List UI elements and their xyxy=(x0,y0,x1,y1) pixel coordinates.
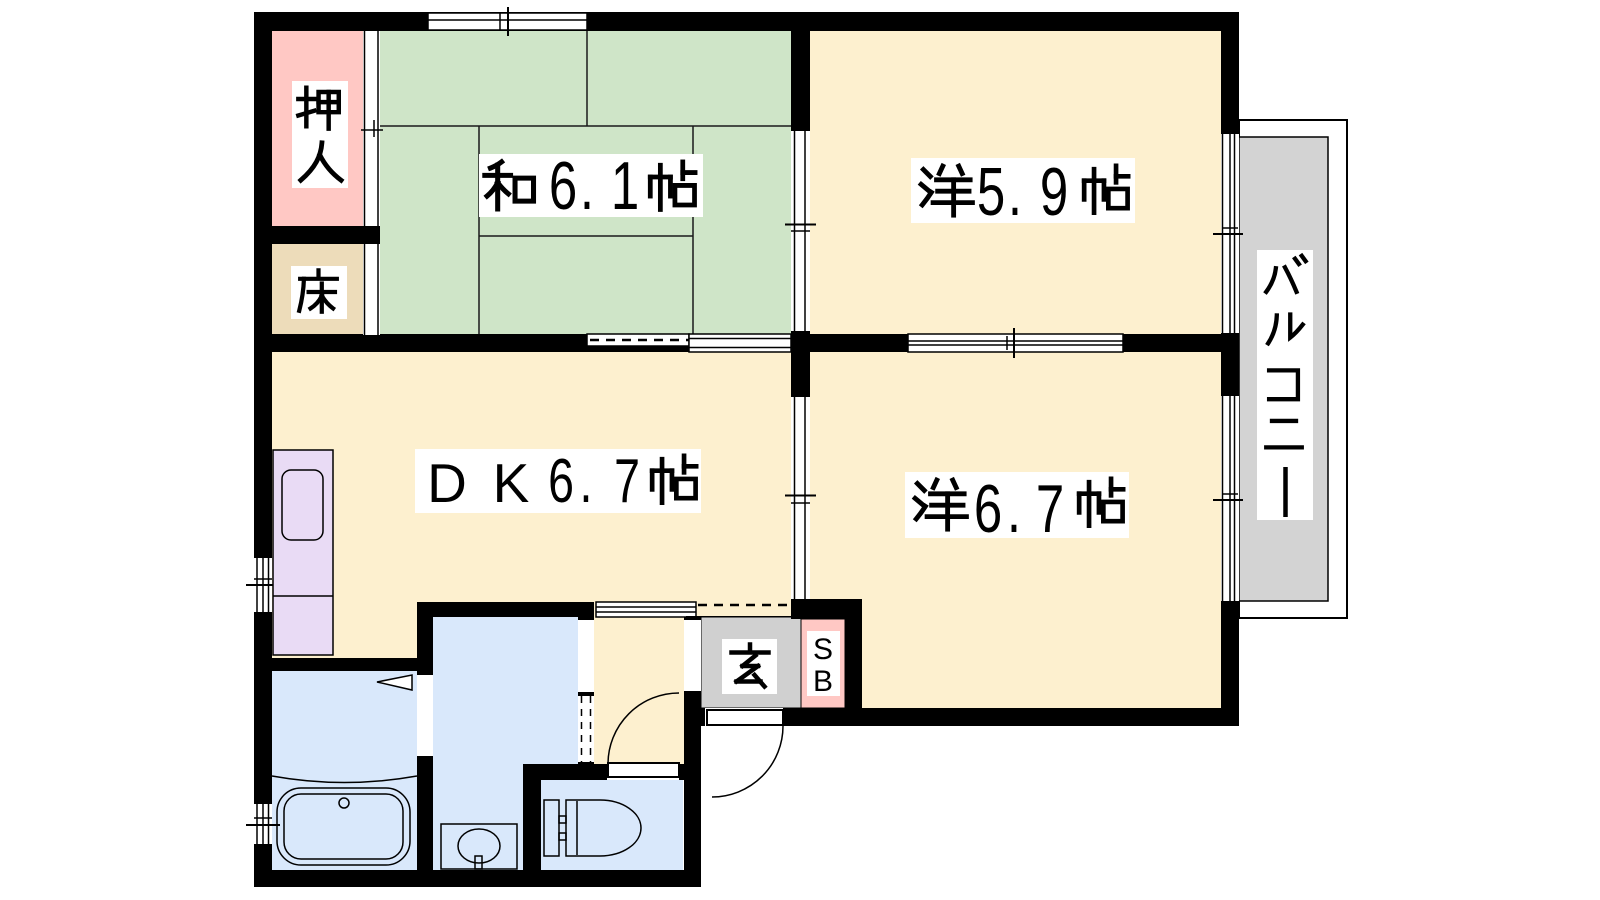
svg-text:.: . xyxy=(1008,154,1022,230)
svg-text:6: 6 xyxy=(974,471,1002,547)
svg-text:.: . xyxy=(580,148,594,224)
svg-text:.: . xyxy=(580,445,593,515)
svg-text:9: 9 xyxy=(1040,154,1068,230)
svg-text:K: K xyxy=(493,452,530,514)
svg-text:.: . xyxy=(1007,471,1021,547)
svg-text:5: 5 xyxy=(977,154,1005,230)
svg-text:6: 6 xyxy=(549,148,577,224)
svg-text:S: S xyxy=(813,633,833,666)
svg-text:7: 7 xyxy=(1036,471,1064,547)
svg-text:6: 6 xyxy=(548,445,574,515)
svg-text:1: 1 xyxy=(611,148,639,224)
svg-text:7: 7 xyxy=(614,445,640,515)
svg-text:B: B xyxy=(813,665,833,698)
svg-text:D: D xyxy=(427,452,467,514)
